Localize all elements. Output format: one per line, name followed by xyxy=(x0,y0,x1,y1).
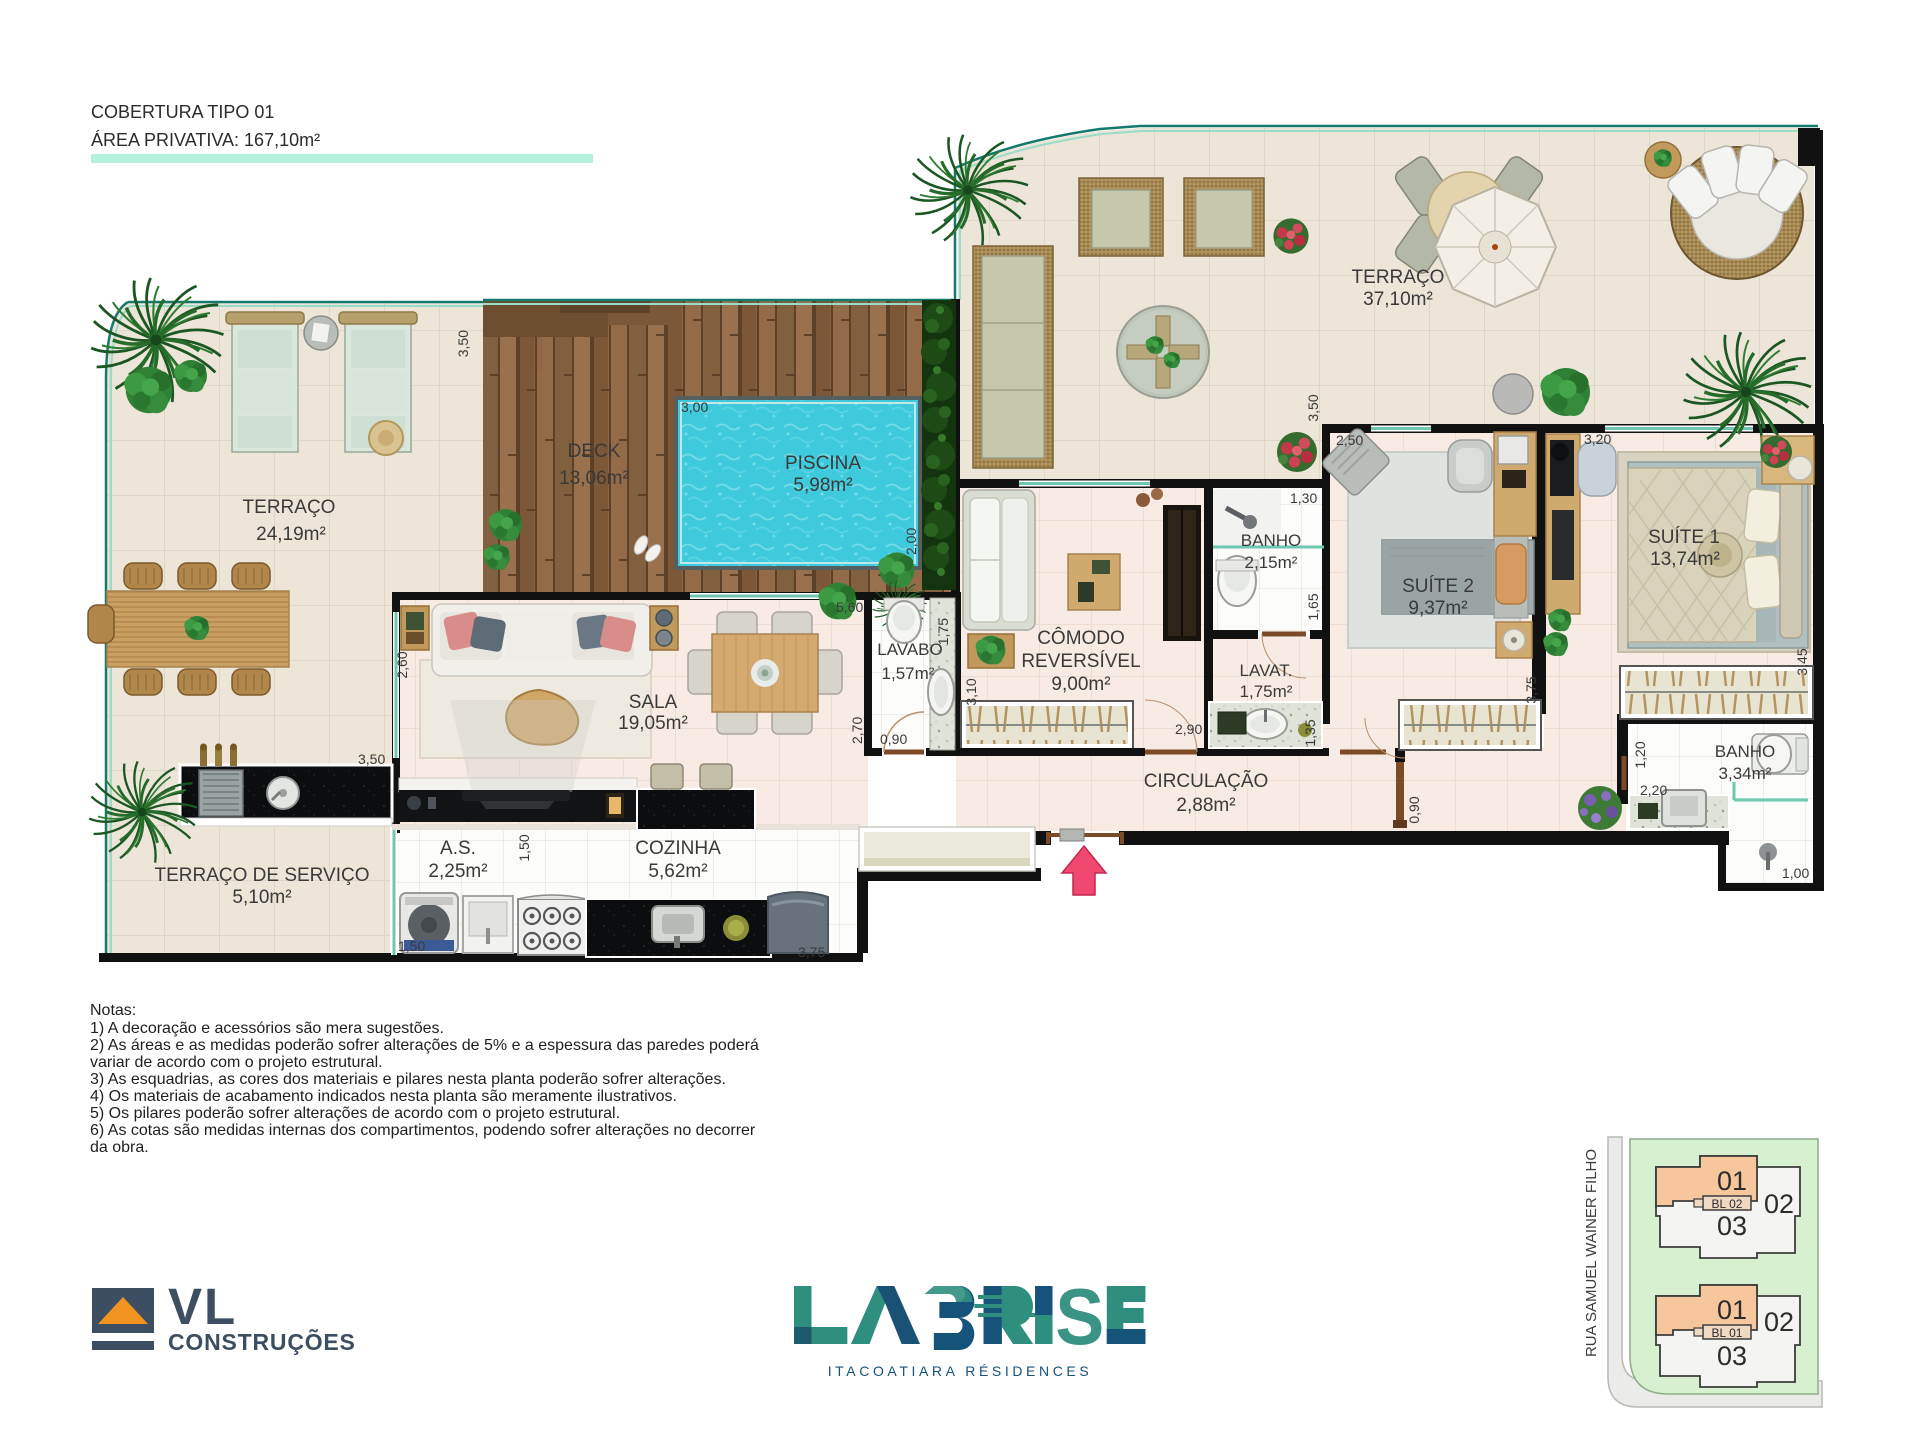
svg-text:2,00: 2,00 xyxy=(903,528,919,555)
svg-text:SALA: SALA xyxy=(629,692,678,713)
svg-text:3,20: 3,20 xyxy=(1584,431,1611,447)
svg-text:1,00: 1,00 xyxy=(1782,865,1809,881)
svg-text:5,98m²: 5,98m² xyxy=(793,475,852,496)
svg-text:1,75m²: 1,75m² xyxy=(1240,682,1293,701)
svg-text:3,75: 3,75 xyxy=(1523,676,1539,703)
svg-text:VL: VL xyxy=(168,1278,237,1335)
svg-text:COZINHA: COZINHA xyxy=(635,838,721,859)
svg-text:3) As esquadrias, as cores dos: 3) As esquadrias, as cores dos materiais… xyxy=(90,1071,726,1088)
svg-text:BANHO: BANHO xyxy=(1241,531,1301,550)
svg-text:3,50: 3,50 xyxy=(358,751,385,767)
svg-text:1,30: 1,30 xyxy=(1290,490,1317,506)
svg-text:variar de acordo com o projeto: variar de acordo com o projeto estrutura… xyxy=(90,1054,383,1071)
svg-text:02: 02 xyxy=(1764,1189,1794,1219)
svg-text:LAVAT.: LAVAT. xyxy=(1240,661,1293,680)
svg-text:9,37m²: 9,37m² xyxy=(1408,598,1467,619)
svg-text:5,10m²: 5,10m² xyxy=(232,887,291,908)
svg-text:19,05m²: 19,05m² xyxy=(618,713,688,734)
svg-text:2) As áreas e as medidas poder: 2) As áreas e as medidas poderão sofrer … xyxy=(90,1037,759,1054)
svg-text:3,00: 3,00 xyxy=(681,399,708,415)
svg-text:13,74m²: 13,74m² xyxy=(1650,549,1720,570)
svg-text:3,45: 3,45 xyxy=(1794,648,1810,675)
svg-text:3,75: 3,75 xyxy=(798,944,825,960)
svg-text:BL 01: BL 01 xyxy=(1712,1326,1743,1340)
svg-text:2,50: 2,50 xyxy=(1336,432,1363,448)
svg-text:24,19m²: 24,19m² xyxy=(256,524,326,545)
svg-text:2,15m²: 2,15m² xyxy=(1245,553,1298,572)
svg-text:01: 01 xyxy=(1717,1295,1747,1325)
svg-text:TERRAÇO: TERRAÇO xyxy=(1352,267,1445,288)
svg-text:0,90: 0,90 xyxy=(880,731,907,747)
svg-text:REVERSÍVEL: REVERSÍVEL xyxy=(1021,651,1140,672)
svg-text:5,60: 5,60 xyxy=(836,599,863,615)
svg-text:03: 03 xyxy=(1717,1211,1747,1241)
svg-text:LAVABO: LAVABO xyxy=(877,640,943,659)
svg-text:5) Os pilares poderão sofrer a: 5) Os pilares poderão sofrer alterações … xyxy=(90,1105,620,1122)
svg-text:2,70: 2,70 xyxy=(849,717,865,744)
svg-text:13,06m²: 13,06m² xyxy=(559,468,629,489)
svg-text:02: 02 xyxy=(1764,1307,1794,1337)
svg-text:1,35: 1,35 xyxy=(1302,719,1318,746)
svg-text:TERRAÇO: TERRAÇO xyxy=(243,497,336,518)
svg-text:2,20: 2,20 xyxy=(1640,782,1667,798)
svg-text:5,62m²: 5,62m² xyxy=(648,861,707,882)
svg-text:0,90: 0,90 xyxy=(1406,796,1422,823)
svg-text:4) Os materiais de acabamento: 4) Os materiais de acabamento indicados … xyxy=(90,1088,677,1105)
svg-text:ITACOATIARA RÉSIDENCES: ITACOATIARA RÉSIDENCES xyxy=(828,1363,1093,1379)
svg-text:2,90: 2,90 xyxy=(1175,721,1202,737)
svg-text:A.S.: A.S. xyxy=(440,838,476,859)
svg-text:6) As cotas são medidas intern: 6) As cotas são medidas internas dos com… xyxy=(90,1122,756,1139)
svg-text:1) A decoração e acessórios sã: 1) A decoração e acessórios são mera sug… xyxy=(90,1020,444,1037)
svg-text:1,75: 1,75 xyxy=(935,618,951,645)
svg-text:PISCINA: PISCINA xyxy=(785,453,861,474)
svg-text:3,50: 3,50 xyxy=(455,330,471,357)
svg-text:1,20: 1,20 xyxy=(1632,741,1648,768)
svg-text:03: 03 xyxy=(1717,1341,1747,1371)
svg-text:COBERTURA TIPO 01: COBERTURA TIPO 01 xyxy=(91,102,274,122)
svg-text:37,10m²: 37,10m² xyxy=(1363,289,1433,310)
svg-text:3,50: 3,50 xyxy=(1305,394,1321,421)
svg-text:CIRCULAÇÃO: CIRCULAÇÃO xyxy=(1144,770,1269,792)
svg-text:SUÍTE 2: SUÍTE 2 xyxy=(1402,576,1474,597)
svg-text:1,65: 1,65 xyxy=(1305,593,1321,620)
svg-text:BL 02: BL 02 xyxy=(1712,1197,1743,1211)
svg-text:CÔMODO: CÔMODO xyxy=(1037,627,1125,649)
svg-text:2,25m²: 2,25m² xyxy=(428,861,487,882)
svg-text:Notas:: Notas: xyxy=(90,1002,136,1019)
svg-text:da obra.: da obra. xyxy=(90,1139,149,1156)
svg-text:3,34m²: 3,34m² xyxy=(1719,764,1772,783)
svg-text:BANHO: BANHO xyxy=(1715,742,1775,761)
svg-text:2,88m²: 2,88m² xyxy=(1176,795,1235,816)
svg-text:DECK: DECK xyxy=(568,441,621,462)
svg-text:2,60: 2,60 xyxy=(394,651,410,678)
svg-text:1,50: 1,50 xyxy=(516,834,532,861)
svg-text:01: 01 xyxy=(1717,1166,1747,1196)
svg-text:CONSTRUÇÕES: CONSTRUÇÕES xyxy=(168,1328,356,1355)
svg-text:RUA SAMUEL WAINER FILHO: RUA SAMUEL WAINER FILHO xyxy=(1583,1149,1600,1357)
svg-text:9,00m²: 9,00m² xyxy=(1051,674,1110,695)
svg-text:1,50: 1,50 xyxy=(398,938,425,954)
svg-text:S: S xyxy=(1055,1272,1104,1362)
svg-text:TERRAÇO DE SERVIÇO: TERRAÇO DE SERVIÇO xyxy=(154,865,369,886)
svg-text:ÁREA PRIVATIVA: 167,10m²: ÁREA PRIVATIVA: 167,10m² xyxy=(91,130,320,150)
svg-text:SUÍTE 1: SUÍTE 1 xyxy=(1648,527,1720,548)
svg-text:1,57m²: 1,57m² xyxy=(882,664,935,683)
svg-text:3,10: 3,10 xyxy=(963,678,979,705)
